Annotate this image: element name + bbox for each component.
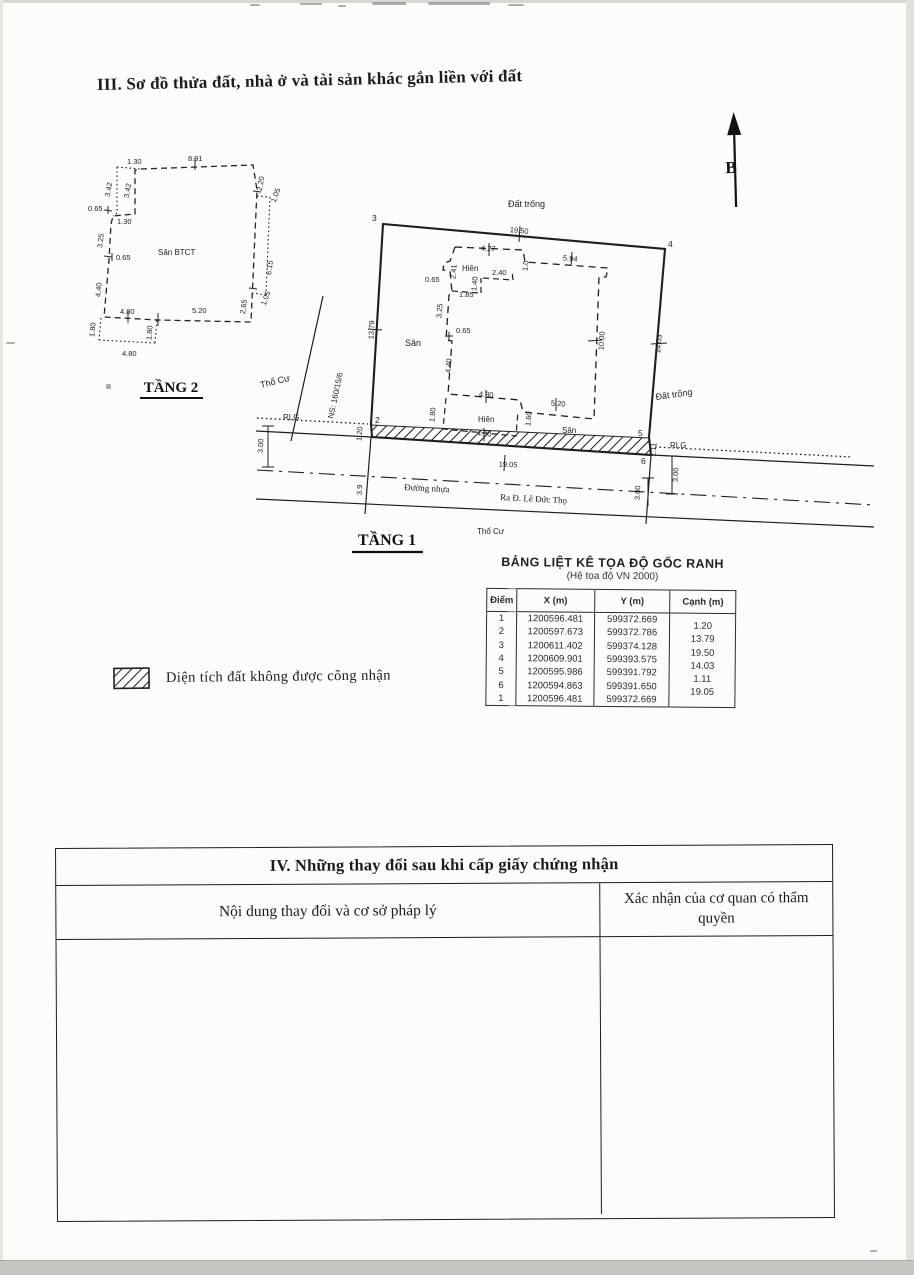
col-header-diem: Điểm	[487, 588, 517, 611]
coord-cell-diem: 2	[486, 625, 516, 639]
dim-label: 4.27	[481, 244, 496, 254]
area-label-right: Đất trống	[655, 387, 693, 402]
coord-cell-y: 599393.575	[594, 653, 670, 667]
coordinate-table: Điểm X (m) Y (m) Cạnh (m) 11200596.48159…	[485, 588, 736, 708]
coord-cell-x: 1200609.901	[516, 652, 594, 666]
dim-label: 6.15	[264, 260, 275, 276]
section4-body	[57, 936, 834, 1217]
coord-cell-y: 599372.669	[594, 612, 670, 626]
legend-text: Diện tích đất không được công nhận	[166, 668, 391, 687]
dim-label: 1.30	[117, 217, 132, 226]
area-label-top: Đất trống	[508, 199, 545, 209]
coord-cell-y: 599374.128	[594, 639, 670, 653]
scanned-certificate-page: { "page": { "section3_title": "III. Sơ đ…	[0, 0, 914, 1274]
section4-col-right-header: Xác nhận của cơ quan có thẩm quyền	[600, 882, 832, 936]
yard-label: Sân	[405, 338, 421, 348]
dim-label: 1.80	[144, 325, 154, 340]
north-label: B	[725, 158, 737, 177]
edge-length-value: 13.79	[672, 633, 733, 647]
dim-label: 13.79	[367, 320, 377, 339]
coord-cell-x: 1200595.986	[516, 665, 594, 679]
coordinate-table-subtitle: (Hệ tọa độ VN 2000)	[486, 570, 738, 583]
corner-label: 3	[372, 213, 377, 223]
area-label-bottom: Thổ Cư	[477, 527, 505, 536]
dim-label: 3.42	[122, 183, 133, 199]
coord-cell-diem: 1	[486, 692, 516, 706]
section4-body-left-cell	[57, 937, 602, 1217]
coord-cell-y: 599372.669	[594, 693, 670, 707]
site-diagram: B 1.30 8.91 3.42 3.42 0.65 1.30 3.25 0.6…	[0, 95, 914, 565]
corner-label: 4	[668, 239, 673, 249]
corner-label: 5	[638, 428, 643, 438]
col-header-canh: Cạnh (m)	[670, 590, 736, 614]
coord-cell-diem: 4	[486, 652, 516, 666]
lane-label: NS: 160/15/6	[326, 371, 345, 419]
dim-label: 3.00	[256, 438, 266, 453]
dim-label: 2.40	[492, 268, 507, 277]
coordinate-table-body: 11200596.481599372.6691.2013.7919.5014.0…	[486, 611, 736, 707]
yard-bottom-label: Sân	[562, 426, 576, 435]
rlg-left-label: RLG	[283, 413, 299, 422]
section4-title: IV. Những thay đổi sau khi cấp giấy chứn…	[56, 845, 832, 886]
dim-label: 10.00	[596, 331, 606, 350]
dim-label: 3.25	[95, 233, 106, 249]
coord-cell-x: 1200611.402	[516, 639, 594, 653]
coord-cell-diem: 5	[486, 665, 516, 679]
dim-label: 3.00	[671, 467, 681, 482]
dim-label: 14.03	[653, 334, 664, 353]
coord-edge-column: 1.2013.7919.5014.031.1119.05	[669, 613, 735, 708]
dim-label: 1.20	[354, 426, 364, 441]
dim-label: 0.65	[425, 275, 440, 284]
dim-label: 2.65	[238, 299, 249, 315]
coord-cell-y: 599391.650	[594, 679, 670, 693]
dim-label: 19.05	[499, 460, 518, 470]
dim-label: 1.80	[87, 322, 97, 337]
dim-label: 1.80	[427, 407, 437, 422]
dim-label: 1.05	[269, 187, 282, 204]
coordinate-table-title: BẢNG LIỆT KÊ TỌA ĐỘ GỐC RANH	[487, 555, 739, 571]
scan-noise	[870, 1250, 877, 1252]
scan-noise	[300, 3, 322, 5]
dim-label: 4.80	[120, 307, 135, 316]
floor1-plan: 3 4 2 5 6 19.50 13.79 14.03 19.05 10.00 …	[256, 199, 874, 552]
scan-noise	[372, 2, 406, 5]
road-label: Đường nhựa	[404, 482, 450, 494]
dim-label: 4.80	[477, 429, 492, 439]
dim-label: 4.80	[122, 349, 137, 358]
dim-label: 1.05	[259, 290, 272, 307]
dim-label: 3.00	[633, 485, 643, 500]
dim-label: 4.80	[479, 390, 494, 400]
coord-cell-diem: 1	[487, 611, 517, 625]
context-lines	[256, 296, 874, 524]
dim-label: 1.40	[469, 276, 479, 291]
road-destination-label: Ra Đ. Lê Đức Thọ	[500, 492, 568, 506]
coord-cell-diem: 6	[486, 678, 516, 692]
floor2-plan: 1.30 8.91 3.42 3.42 0.65 1.30 3.25 0.65 …	[87, 154, 282, 398]
dim-label: 1.0	[521, 260, 531, 271]
dim-label: 5.94	[563, 253, 578, 263]
dim-label: 0.65	[116, 253, 131, 262]
coordinate-table-header-row: Điểm X (m) Y (m) Cạnh (m)	[487, 588, 736, 613]
dim-label: 4.40	[443, 358, 453, 373]
corner-label: 2	[375, 415, 380, 425]
dim-label: 3.9	[355, 484, 365, 495]
legend: Diện tích đất không được công nhận	[113, 665, 391, 691]
dim-label: 4.40	[93, 282, 103, 297]
coord-cell-y: 599391.792	[594, 666, 670, 680]
dim-label: 8.91	[188, 154, 203, 163]
dim-label: 2.41	[448, 264, 458, 279]
dim-label: 1.30	[127, 157, 142, 166]
area-label-left: Thổ Cư	[259, 373, 291, 390]
porch-top-label: Hiên	[462, 264, 478, 273]
dim-label: 5.20	[551, 399, 566, 409]
col-header-y: Y (m)	[594, 589, 670, 613]
edge-length-value: 14.03	[672, 659, 733, 673]
coord-cell-x: 1200596.481	[516, 612, 594, 626]
north-arrow: B	[724, 112, 743, 207]
section4-header-row: Nội dung thay đổi và cơ sở pháp lý Xác n…	[56, 882, 832, 940]
scan-noise	[338, 5, 346, 7]
dim-label: 5.20	[192, 306, 207, 315]
dim-label: 1.60	[523, 411, 533, 426]
coord-cell-diem: 3	[486, 638, 516, 652]
scan-noise	[508, 4, 524, 6]
coord-cell-x: 1200596.481	[516, 692, 594, 706]
section4-col-left-header: Nội dung thay đổi và cơ sở pháp lý	[56, 883, 600, 939]
floor1-title: TẦNG 1	[358, 530, 416, 549]
col-header-x: X (m)	[517, 589, 595, 613]
edge-length-value: 1.11	[672, 673, 733, 687]
section4-table: IV. Những thay đổi sau khi cấp giấy chứn…	[55, 844, 835, 1222]
coord-cell-x: 1200597.673	[516, 625, 594, 639]
section4-body-right-cell	[601, 936, 834, 1214]
dim-label: 0.65	[456, 326, 471, 335]
dim-label: 3.25	[434, 303, 444, 318]
rlg-right-label: RLG	[670, 441, 686, 450]
scan-edge-bottom	[0, 1260, 914, 1275]
floor2-title: TẦNG 2	[144, 379, 199, 396]
hatch-swatch-icon	[113, 667, 151, 690]
dim-label: 1.11	[648, 442, 658, 457]
scan-noise	[428, 2, 490, 5]
scan-noise	[250, 4, 260, 6]
dim-label: 0.65	[88, 204, 103, 213]
edge-length-value: 19.50	[672, 646, 733, 660]
edge-length-value: 19.05	[672, 686, 733, 700]
porch-bottom-label: Hiên	[478, 415, 494, 424]
edge-length-value: 1.20	[672, 620, 733, 634]
floor2-area-label: Sân BTCT	[158, 248, 195, 257]
corner-label: 6	[641, 456, 646, 466]
dim-label: 3.42	[103, 182, 114, 198]
coordinate-table-block: BẢNG LIỆT KÊ TỌA ĐỘ GỐC RANH (Hệ tọa độ …	[485, 555, 738, 708]
dim-label: 19.50	[509, 225, 528, 236]
coord-cell-y: 599372.786	[594, 626, 670, 640]
coord-cell-x: 1200594.863	[516, 679, 594, 693]
section3-title: III. Sơ đồ thửa đất, nhà ở và tài sản kh…	[97, 65, 577, 95]
dim-label: 2.20	[255, 176, 266, 192]
